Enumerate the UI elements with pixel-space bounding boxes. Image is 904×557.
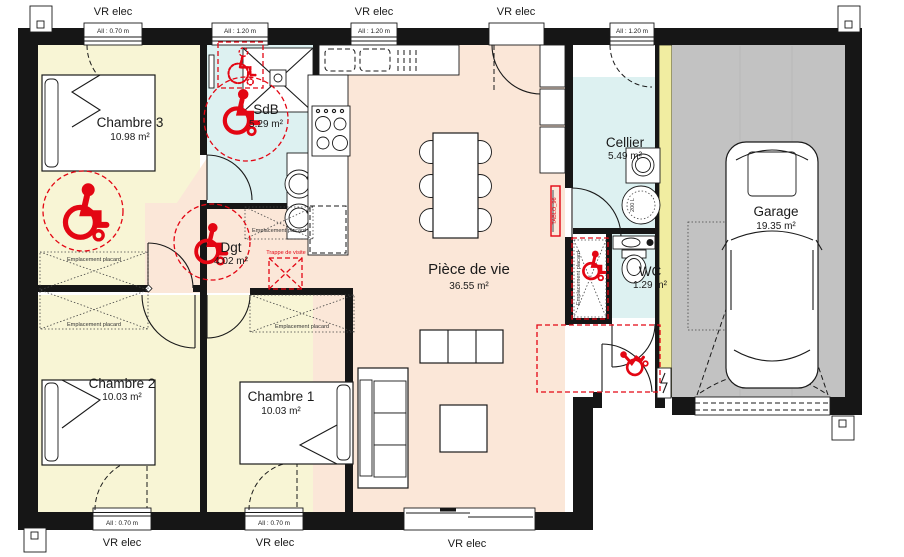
- placard-label-5: Emplacement placard: [576, 251, 582, 305]
- placard-label-3: Emplacement placard: [252, 228, 306, 234]
- area-wc: 1.29 m²: [633, 280, 668, 291]
- sill-label: All : 0.70 m: [258, 520, 290, 527]
- label-sdb: SdB: [253, 102, 279, 117]
- sill-label: All : 0.70 m: [97, 28, 129, 35]
- area-sdb: 5.29 m²: [249, 119, 284, 130]
- vr-elec-top-2: VR elec: [355, 6, 394, 18]
- label-dgt: Dgt: [220, 240, 241, 255]
- tall-unit: [540, 89, 565, 125]
- water-heater: 200 L: [622, 186, 660, 224]
- placard-label-4: Emplacement placard: [275, 324, 329, 330]
- coffee-table: [440, 405, 487, 452]
- sideboard: [420, 330, 503, 363]
- vr-elec-bottom-3: VR elec: [448, 538, 487, 550]
- sill-label: All : 1.20 m: [616, 28, 648, 35]
- water-heater-label: 200 L: [630, 198, 636, 212]
- car: [722, 142, 822, 388]
- label-chambre2: Chambre 2: [89, 376, 156, 391]
- wall-right: [845, 28, 862, 415]
- area-chambre2: 10.03 m²: [102, 392, 142, 403]
- partition-garage-wall: [659, 45, 672, 397]
- fridge: [540, 127, 565, 173]
- sill-label: All : 1.20 m: [224, 28, 256, 35]
- entrance-door: [602, 344, 655, 408]
- placard-label-2: Emplacement placard: [67, 322, 121, 328]
- label-garage: Garage: [753, 204, 798, 219]
- electric-meter: [657, 368, 671, 398]
- wall-step: [573, 397, 593, 530]
- vr-elec-top-3: VR elec: [497, 6, 536, 18]
- label-piece-de-vie: Pièce de vie: [428, 261, 510, 278]
- label-wc: WC: [639, 264, 662, 279]
- vr-elec-bottom-1: VR elec: [103, 537, 142, 549]
- area-garage: 19.35 m²: [756, 221, 796, 232]
- tall-unit: [540, 45, 565, 87]
- label-cellier: Cellier: [606, 135, 645, 150]
- label-chambre1: Chambre 1: [248, 389, 315, 404]
- area-dgt: 4.02 m²: [214, 256, 249, 267]
- wheelchair-icon-placard: [583, 251, 604, 281]
- vr-elec-bottom-2: VR elec: [256, 537, 295, 549]
- wall-left: [18, 28, 38, 530]
- floor-plan-page: All : 0.70 m All : 1.20 m All : 1.20 m A…: [0, 0, 904, 557]
- bay-window: [404, 508, 535, 530]
- towel-radiator: [209, 55, 214, 88]
- floor-plan-drawing: All : 0.70 m All : 1.20 m All : 1.20 m A…: [0, 0, 904, 557]
- label-chambre3: Chambre 3: [97, 115, 164, 130]
- sill-label: All : 1.20 m: [358, 28, 390, 35]
- window-top-3: All : 1.20 m: [351, 23, 397, 45]
- vr-elec-top-1: VR elec: [94, 6, 133, 18]
- trappe-label: Trappe de visite: [266, 250, 306, 256]
- sill-label: All : 0.70 m: [106, 520, 138, 527]
- placard-label-1: Emplacement placard: [67, 257, 121, 263]
- area-chambre1: 10.03 m²: [261, 406, 301, 417]
- sofa: [358, 368, 408, 488]
- dining-set: [420, 133, 492, 238]
- wall-top: [18, 28, 862, 45]
- wheelchair-icon-entry: [614, 345, 649, 378]
- cooktop: [312, 106, 350, 156]
- area-chambre3: 10.98 m²: [110, 132, 150, 143]
- area-piece-de-vie: 36.55 m²: [449, 281, 489, 292]
- area-cellier: 5.49 m²: [608, 151, 643, 162]
- window-top-cellier: All : 1.20 m: [610, 23, 654, 45]
- tablo-label: TABLO_96: [552, 197, 558, 224]
